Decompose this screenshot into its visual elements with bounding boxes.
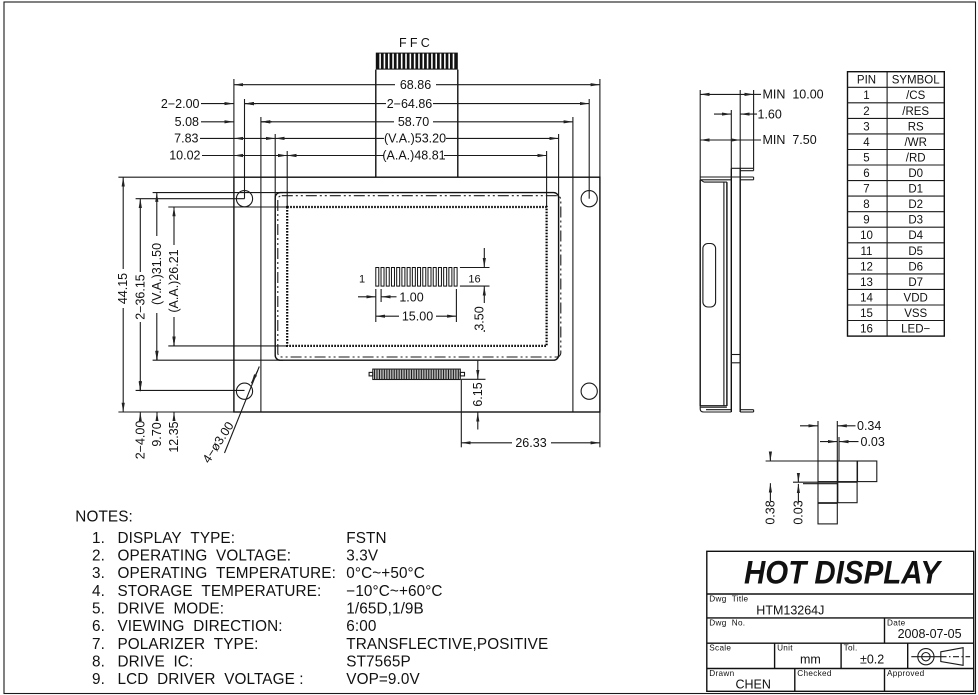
svg-text:8: 8 bbox=[863, 199, 869, 211]
svg-text:0.38: 0.38 bbox=[764, 500, 778, 524]
svg-text:LCD DRIVER VOLTAGE :: LCD DRIVER VOLTAGE : bbox=[118, 671, 304, 688]
svg-text:9.70: 9.70 bbox=[150, 422, 164, 446]
svg-text:6.15: 6.15 bbox=[471, 382, 485, 406]
svg-text:1: 1 bbox=[863, 90, 869, 102]
svg-text:/WR: /WR bbox=[905, 137, 927, 149]
svg-text:LED−: LED− bbox=[901, 324, 930, 336]
svg-text:1.: 1. bbox=[92, 530, 105, 547]
svg-text:/RD: /RD bbox=[906, 152, 926, 164]
svg-text:RS: RS bbox=[908, 121, 924, 133]
svg-text:MIN 10.00: MIN 10.00 bbox=[763, 88, 824, 102]
svg-text:44.15: 44.15 bbox=[116, 273, 130, 304]
svg-text:2.: 2. bbox=[92, 548, 105, 565]
svg-text:13: 13 bbox=[860, 277, 873, 289]
svg-text:15: 15 bbox=[860, 308, 873, 320]
svg-text:4: 4 bbox=[863, 137, 870, 149]
svg-text:/CS: /CS bbox=[906, 90, 926, 102]
svg-text:VSS: VSS bbox=[904, 308, 927, 320]
svg-text:2−2.00: 2−2.00 bbox=[161, 97, 200, 111]
svg-text:/RES: /RES bbox=[902, 106, 929, 118]
svg-text:D4: D4 bbox=[908, 230, 923, 242]
svg-text:14: 14 bbox=[860, 292, 873, 304]
svg-text:0.03: 0.03 bbox=[792, 500, 806, 524]
svg-text:7.83: 7.83 bbox=[174, 132, 198, 146]
svg-text:6.: 6. bbox=[92, 618, 105, 635]
svg-text:STORAGE TEMPERATURE:: STORAGE TEMPERATURE: bbox=[118, 583, 322, 600]
svg-text:Scale: Scale bbox=[709, 644, 731, 653]
svg-text:7.: 7. bbox=[92, 636, 105, 653]
svg-text:6: 6 bbox=[863, 168, 869, 180]
svg-text:26.33: 26.33 bbox=[515, 436, 546, 450]
svg-text:3.3V: 3.3V bbox=[346, 548, 379, 565]
svg-text:12: 12 bbox=[860, 261, 873, 273]
svg-text:9.: 9. bbox=[92, 671, 105, 688]
svg-text:MIN 7.50: MIN 7.50 bbox=[763, 133, 817, 147]
svg-text:±0.2: ±0.2 bbox=[860, 652, 884, 666]
svg-text:VIEWING DIRECTION:: VIEWING DIRECTION: bbox=[118, 618, 283, 635]
svg-text:DRIVE MODE:: DRIVE MODE: bbox=[118, 601, 225, 618]
svg-text:OPERATING TEMPERATURE:: OPERATING TEMPERATURE: bbox=[118, 565, 336, 582]
svg-text:VOP=9.0V: VOP=9.0V bbox=[346, 671, 420, 688]
svg-text:11: 11 bbox=[861, 246, 873, 258]
svg-text:2008-07-05: 2008-07-05 bbox=[898, 627, 962, 641]
svg-text:D0: D0 bbox=[908, 168, 923, 180]
svg-text:Drawn: Drawn bbox=[709, 669, 734, 678]
svg-text:Checked: Checked bbox=[797, 669, 832, 678]
svg-text:10.02: 10.02 bbox=[169, 149, 200, 163]
svg-text:6:00: 6:00 bbox=[346, 618, 376, 635]
svg-text:FSTN: FSTN bbox=[346, 530, 386, 547]
svg-text:1.00: 1.00 bbox=[399, 290, 423, 304]
svg-text:Approved: Approved bbox=[887, 669, 925, 678]
svg-text:(V.A.)31.50: (V.A.)31.50 bbox=[150, 243, 164, 305]
svg-text:58.70: 58.70 bbox=[398, 115, 429, 129]
svg-text:2: 2 bbox=[863, 106, 869, 118]
svg-text:4.: 4. bbox=[92, 583, 105, 600]
svg-text:DISPLAY TYPE:: DISPLAY TYPE: bbox=[118, 530, 236, 547]
svg-text:8.: 8. bbox=[92, 653, 105, 670]
svg-text:16: 16 bbox=[860, 324, 873, 336]
svg-text:15.00: 15.00 bbox=[402, 310, 433, 324]
svg-text:Tol.: Tol. bbox=[844, 644, 858, 653]
svg-text:5.08: 5.08 bbox=[175, 115, 199, 129]
svg-text:0.34: 0.34 bbox=[857, 419, 881, 433]
svg-text:5: 5 bbox=[863, 152, 869, 164]
svg-text:HOT DISPLAY: HOT DISPLAY bbox=[744, 555, 942, 591]
svg-text:9: 9 bbox=[863, 215, 869, 227]
svg-text:D6: D6 bbox=[908, 261, 923, 273]
svg-text:VDD: VDD bbox=[904, 292, 928, 304]
svg-text:Dwg No.: Dwg No. bbox=[709, 618, 745, 627]
svg-text:−10°C~+60°C: −10°C~+60°C bbox=[346, 583, 442, 600]
svg-text:1: 1 bbox=[359, 274, 365, 286]
svg-text:16: 16 bbox=[468, 274, 480, 286]
svg-text:5.: 5. bbox=[92, 601, 105, 618]
svg-text:OPERATING VOLTAGE:: OPERATING VOLTAGE: bbox=[118, 548, 292, 565]
svg-text:3.50: 3.50 bbox=[473, 306, 487, 330]
svg-text:DRIVE IC:: DRIVE IC: bbox=[118, 653, 194, 670]
svg-text:0°C~+50°C: 0°C~+50°C bbox=[346, 565, 425, 582]
svg-text:NOTES:: NOTES: bbox=[75, 509, 133, 526]
svg-text:POLARIZER TYPE:: POLARIZER TYPE: bbox=[118, 636, 259, 653]
svg-text:FFC: FFC bbox=[399, 36, 433, 50]
svg-text:SYMBOL: SYMBOL bbox=[892, 75, 941, 87]
svg-text:mm: mm bbox=[800, 652, 821, 666]
svg-text:2−64.86: 2−64.86 bbox=[387, 97, 433, 111]
svg-text:D5: D5 bbox=[908, 246, 923, 258]
svg-text:CHEN: CHEN bbox=[736, 677, 771, 691]
svg-text:1.60: 1.60 bbox=[758, 107, 782, 121]
svg-text:Dwg Title: Dwg Title bbox=[709, 594, 748, 603]
svg-text:(V.A.)53.20: (V.A.)53.20 bbox=[384, 132, 446, 146]
svg-text:12.35: 12.35 bbox=[167, 421, 181, 452]
svg-text:D7: D7 bbox=[908, 277, 923, 289]
svg-text:3: 3 bbox=[863, 121, 869, 133]
svg-text:PIN: PIN bbox=[857, 75, 876, 87]
svg-text:D3: D3 bbox=[908, 215, 923, 227]
svg-text:(A.A.)48.81: (A.A.)48.81 bbox=[382, 149, 445, 163]
svg-text:2−36.15: 2−36.15 bbox=[134, 274, 148, 320]
svg-text:D1: D1 bbox=[908, 184, 923, 196]
svg-text:D2: D2 bbox=[908, 199, 923, 211]
svg-text:1/65D,1/9B: 1/65D,1/9B bbox=[346, 601, 424, 618]
svg-text:(A.A.)26.21: (A.A.)26.21 bbox=[167, 249, 181, 312]
svg-text:68.86: 68.86 bbox=[400, 78, 431, 92]
svg-text:ST7565P: ST7565P bbox=[346, 653, 410, 670]
svg-text:TRANSFLECTIVE,POSITIVE: TRANSFLECTIVE,POSITIVE bbox=[346, 636, 548, 653]
svg-text:0.03: 0.03 bbox=[861, 435, 885, 449]
svg-text:Unit: Unit bbox=[777, 644, 793, 653]
svg-text:10: 10 bbox=[860, 230, 873, 242]
svg-text:7: 7 bbox=[863, 184, 869, 196]
svg-text:3.: 3. bbox=[92, 565, 105, 582]
svg-text:2−4.00: 2−4.00 bbox=[134, 421, 148, 460]
svg-text:HTM13264J: HTM13264J bbox=[756, 604, 824, 618]
